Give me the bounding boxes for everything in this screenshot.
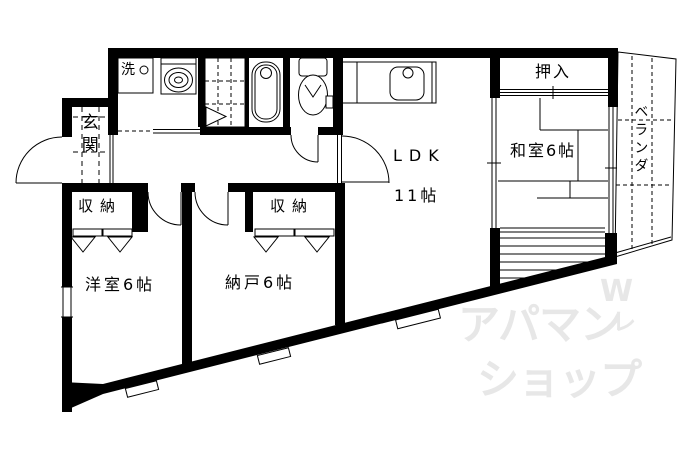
closet-right-side-wall: [245, 192, 253, 232]
closet-left-side-wall: [132, 192, 148, 232]
youshitsu-door-arc: [148, 192, 181, 225]
hall-bottom-wall-3: [228, 183, 342, 192]
bathtub-area: [252, 62, 280, 122]
tatami-lines: [498, 98, 608, 232]
oshiire-left-wall: [490, 48, 500, 98]
youshitsu-nando-wall: [182, 192, 192, 366]
veranda-inner-bottom-line: [615, 237, 671, 253]
washitsu-right-top-wall: [608, 48, 618, 107]
closet-left-doors: [71, 229, 132, 252]
hall-bottom-wall-1: [62, 183, 148, 192]
tub-toilet-wall: [283, 48, 290, 127]
toilet-tank-icon: [299, 58, 327, 76]
washitsu-label: 和室6帖: [510, 142, 576, 160]
toilet-door-arc: [291, 135, 318, 162]
veranda-label: ベランダ: [632, 104, 647, 176]
nando-right-wall: [335, 183, 345, 325]
closet-left-door-triangle2: [108, 237, 132, 252]
washitsu-partitions: [487, 93, 617, 233]
bath-tub-divider: [245, 58, 249, 127]
closet-right-door-triangle1: [254, 237, 278, 252]
toilet-area: [291, 58, 333, 162]
oshiire-label: 押入: [535, 63, 571, 81]
floorplan-page: { "colors": { "wall": "#000000", "backgr…: [0, 0, 690, 460]
southwest-corner-wall: [62, 382, 103, 412]
closet-left-door-triangle1: [71, 237, 95, 252]
washitsu-left-bottom-wall: [490, 228, 500, 287]
youshitsu-label: 洋室6帖: [85, 276, 155, 294]
closet-left-label: 収納: [78, 198, 122, 215]
oshiire-fusuma: [500, 86, 608, 99]
kitchen-sink-icon: [390, 67, 424, 100]
closet-right-door-triangle2: [305, 237, 329, 252]
kitchen-area: [337, 62, 436, 103]
ldk-door-arc: [342, 136, 389, 183]
toilet-right-wall: [333, 48, 343, 135]
floorplan-drawing: [0, 0, 690, 460]
ldk-label: LDK: [393, 147, 446, 165]
washing-machine-label: 洗: [121, 63, 135, 78]
left-wall-upper: [62, 98, 72, 137]
closet-left-leaf1: [73, 229, 102, 236]
bath-entry-area: [205, 58, 245, 127]
closet-right-leaf2: [295, 229, 334, 236]
entrance-door-arc: [16, 137, 62, 183]
kitchen-counter: [337, 62, 436, 103]
diagonal-south-wall: [103, 254, 617, 394]
closet-left-leaf2: [103, 229, 132, 236]
washroom-bottom-wall-2: [200, 127, 291, 135]
ldk-size-label: 11帖: [394, 187, 439, 205]
washbasin-bowl-icon: [169, 73, 188, 88]
toilet-bowl-icon: [299, 75, 328, 115]
nando-label: 納戸6帖: [225, 274, 295, 292]
ldk-partition-and-door: [338, 135, 390, 183]
bath-left-wall: [198, 58, 205, 127]
closet-right-leaf1: [255, 229, 294, 236]
washbasin-drain-icon: [175, 77, 183, 83]
bathtub-faucet-icon: [261, 68, 272, 79]
left-wall-middle: [62, 183, 72, 287]
toilet-paper-holder-icon: [326, 96, 333, 108]
washbasin-counter: [161, 58, 196, 94]
top-wall: [108, 48, 618, 58]
bath-folding-door-icon: [206, 107, 226, 126]
closet-right-doors: [254, 229, 334, 252]
washing-machine-knob-icon: [140, 66, 148, 74]
genkan-label: 玄関: [78, 113, 97, 159]
hall-bottom-wall-2: [181, 183, 195, 192]
kitchen-faucet-icon: [403, 68, 413, 78]
nando-door-arc: [195, 192, 228, 225]
closet-right-label: 収納: [270, 198, 314, 215]
